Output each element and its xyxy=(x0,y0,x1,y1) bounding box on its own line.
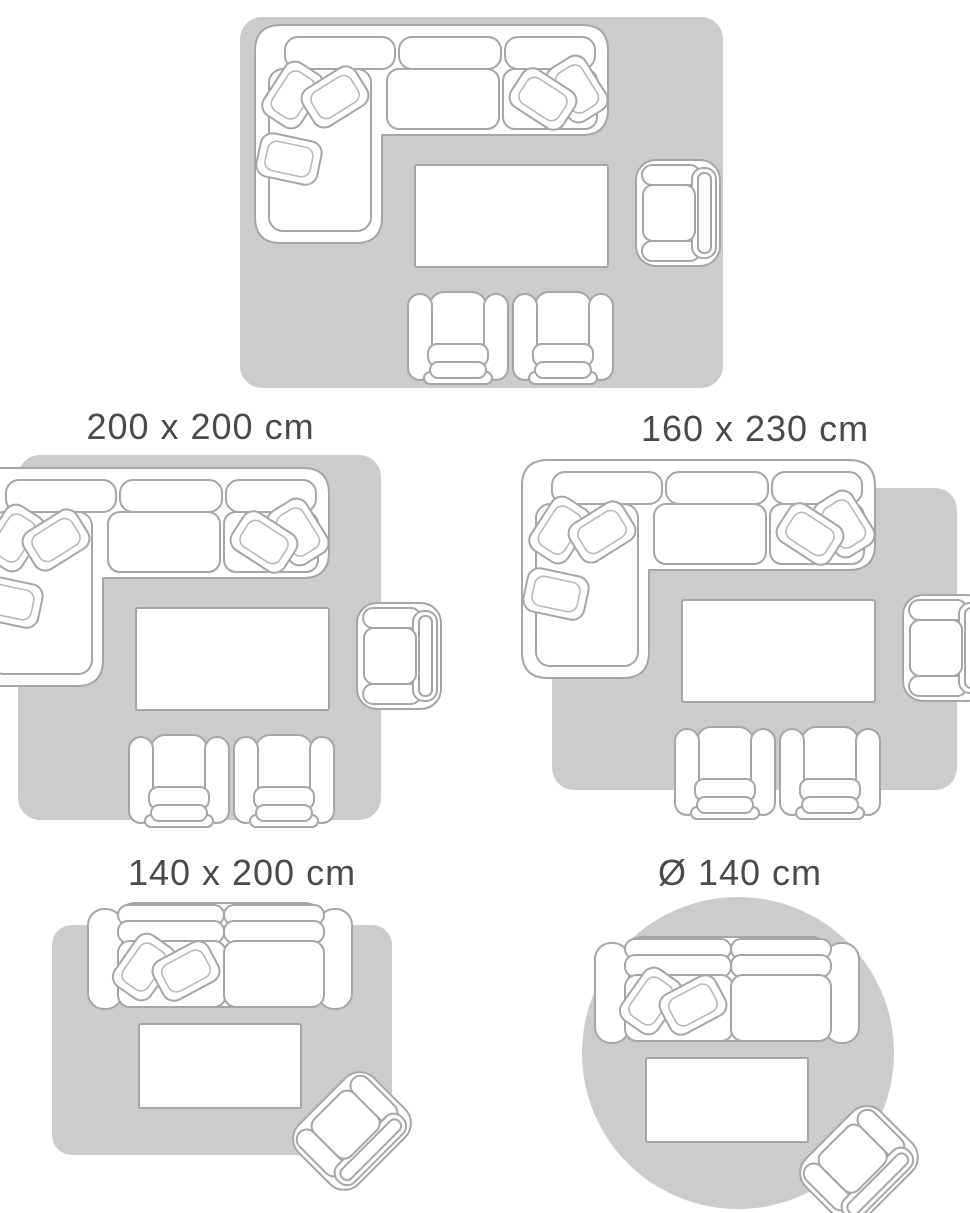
diagram-200x300 xyxy=(240,17,723,388)
diagram-140x200 xyxy=(52,903,419,1198)
size-label-round-140: Ø 140 cm xyxy=(570,852,910,894)
size-guide-canvas xyxy=(0,0,970,1213)
size-label-200x300: 200 x 300 cm xyxy=(240,0,723,8)
diagram-200x200 xyxy=(0,455,441,827)
size-label-200x200: 200 x 200 cm xyxy=(18,406,383,448)
size-label-140x200: 140 x 200 cm xyxy=(72,852,412,894)
diagram-160x230 xyxy=(521,460,970,819)
size-label-160x230: 160 x 230 cm xyxy=(585,408,925,450)
rug-size-guide-image: 200 x 300 cm 200 x 200 cm 160 x 230 cm 1… xyxy=(0,0,970,1213)
diagram-round-140 xyxy=(582,897,926,1213)
